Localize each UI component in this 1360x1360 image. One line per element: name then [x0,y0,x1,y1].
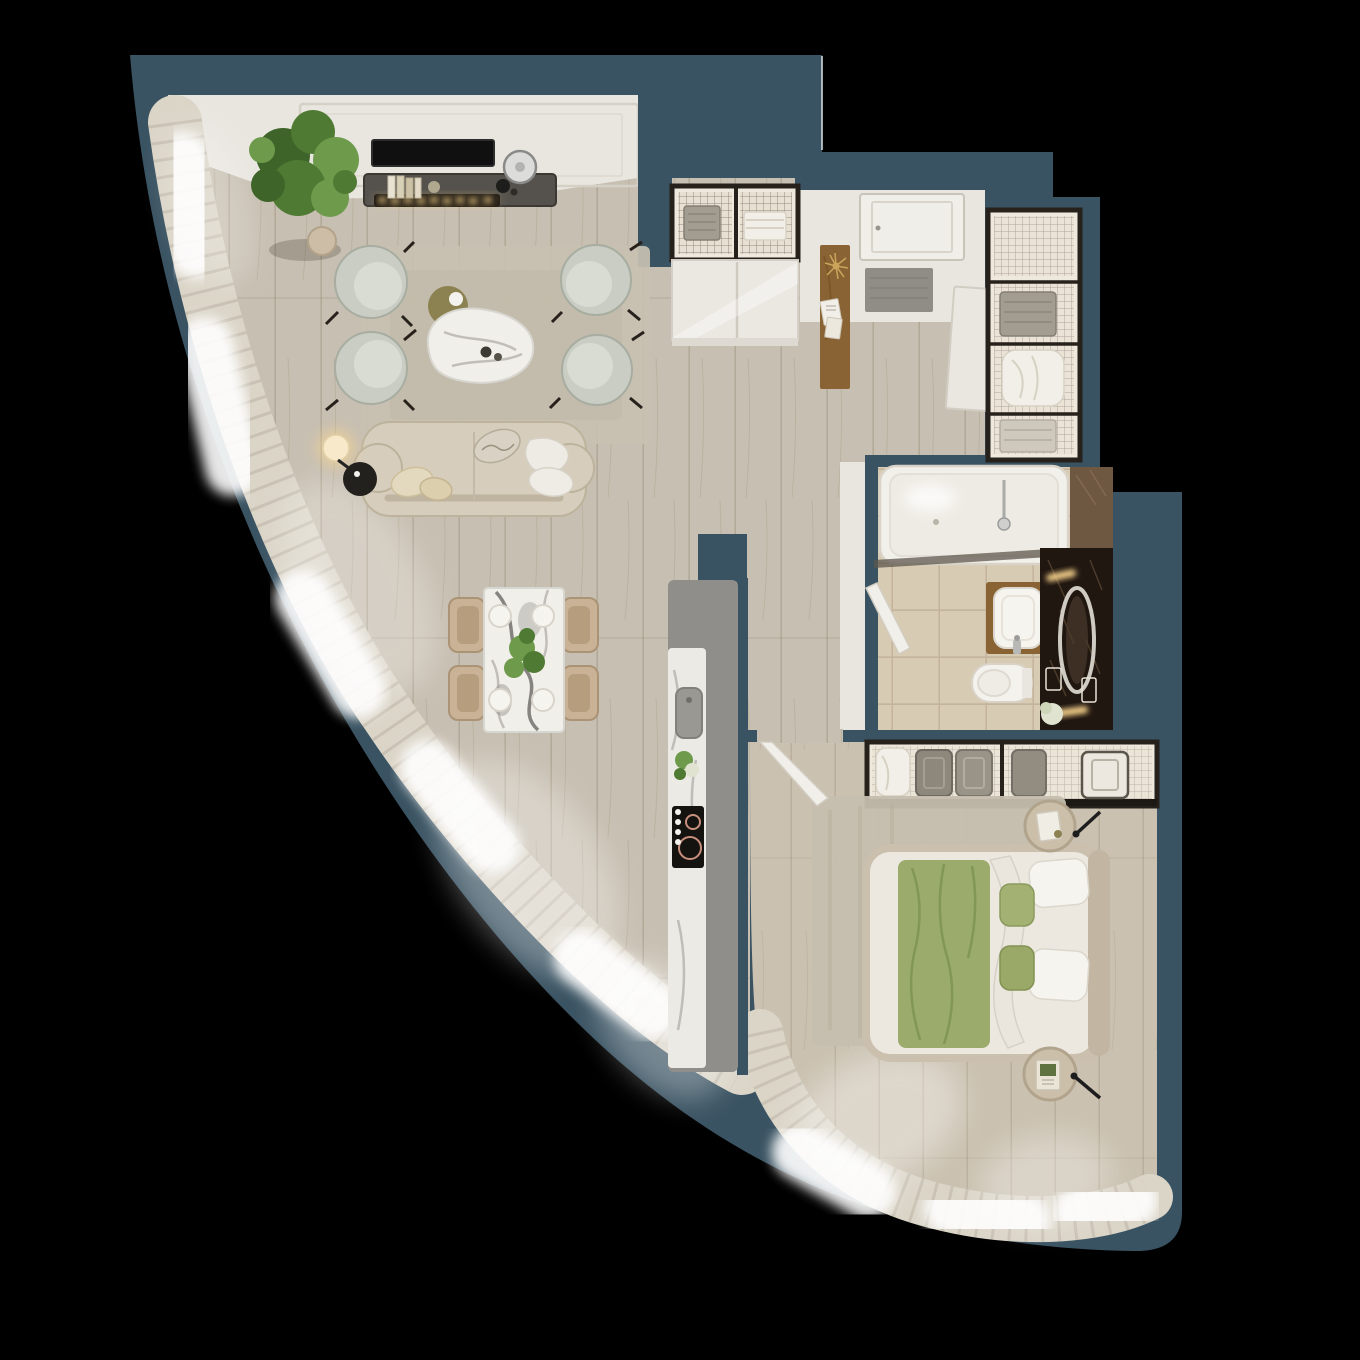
chair-seat [568,674,590,712]
gold-decor [428,181,440,193]
bed-pillow-white-1 [1028,858,1090,909]
doormat [865,268,933,312]
nightstand-decor [1054,830,1062,838]
plate [532,605,554,627]
bathtub-inner [890,474,1058,556]
picture-art [1040,1064,1056,1076]
kitchen [668,580,738,1072]
decor-disc-center [515,162,525,172]
wall-lamp-head [1071,1073,1078,1080]
wardrobe-duvet [876,748,910,796]
plate [489,689,511,711]
bed-pillow-green-1 [1000,884,1034,926]
basket-pillow-white [1082,752,1128,798]
faucet-base [1014,635,1020,641]
faucet [1013,640,1021,654]
chair-seat [457,606,479,644]
entrance-door [860,194,964,260]
door-leaf [860,194,964,260]
sofa [354,422,594,516]
double-bed [862,844,1110,1062]
bedroom-door-opening [757,729,843,743]
black-side-table [343,462,377,496]
black-decor-stone [496,179,510,193]
floor-plan-stage: { "scene": { "type": "3d-apartment-floor… [0,0,1360,1360]
toilet [972,664,1032,702]
cooktop-knob [675,839,681,845]
toilet-seat [978,670,1010,696]
chair-seat [568,606,590,644]
bathtub-shower [874,466,1068,568]
tv-screen [372,140,494,166]
cooktop-knob [675,819,681,825]
closet-mesh-top [994,216,1074,276]
tub-drain [933,519,939,525]
wall-lamp-head [1073,831,1080,838]
marble-wall-upper [1070,467,1113,551]
cooktop [672,806,704,868]
cooktop-knob [675,829,681,835]
tub-highlight [904,484,956,512]
dining-table [484,588,564,732]
entry-mesh-cabinet [672,186,798,260]
vanity [986,582,1048,654]
floor-plan-canvas [0,0,1360,1360]
marble-feature-wall [1040,548,1113,730]
plate [532,689,554,711]
toilet-tank [1022,668,1032,698]
closet-folded-linens [1000,420,1056,452]
olive-disc-hole [449,292,463,306]
bed-pillow-green-2 [1000,946,1034,990]
wall-kitchen-stub [698,534,747,582]
green-velvet-blanket [898,860,990,1048]
mirror-reflection [1066,596,1088,684]
wall-kitchen-corridor [737,578,748,1075]
plant-pot [308,227,336,255]
basket-pillow-gray-3 [1012,750,1046,796]
towel-cube [684,206,720,240]
hall-closet-face [840,462,865,736]
basket-pillow-gray-2 [956,750,992,796]
wall-living-entry [638,95,672,267]
kitchen-sink [676,688,702,738]
wardrobe-base [672,338,798,346]
sliding-wardrobe [672,260,798,346]
window-streak [205,345,233,468]
sink-drain [686,697,692,703]
plate [489,605,511,627]
table-vase [481,347,492,358]
closet-towel-stack [1000,292,1056,336]
bed-pillow-white-2 [1028,948,1089,1002]
door-handle [876,226,881,231]
chair-seat [457,674,479,712]
bathroom-flowers-2 [1040,702,1052,714]
side-table-decor [354,471,360,477]
bed-headboard [1088,850,1110,1056]
walk-in-closet [988,210,1080,460]
cooktop-knob [675,809,681,815]
black-decor-small [511,189,518,196]
table-vase-small [494,353,502,361]
books [388,176,421,198]
linen-stack [744,212,786,240]
lamp-sphere [323,435,349,461]
shower-head [998,518,1010,530]
basket-pillow-gray [916,750,952,796]
